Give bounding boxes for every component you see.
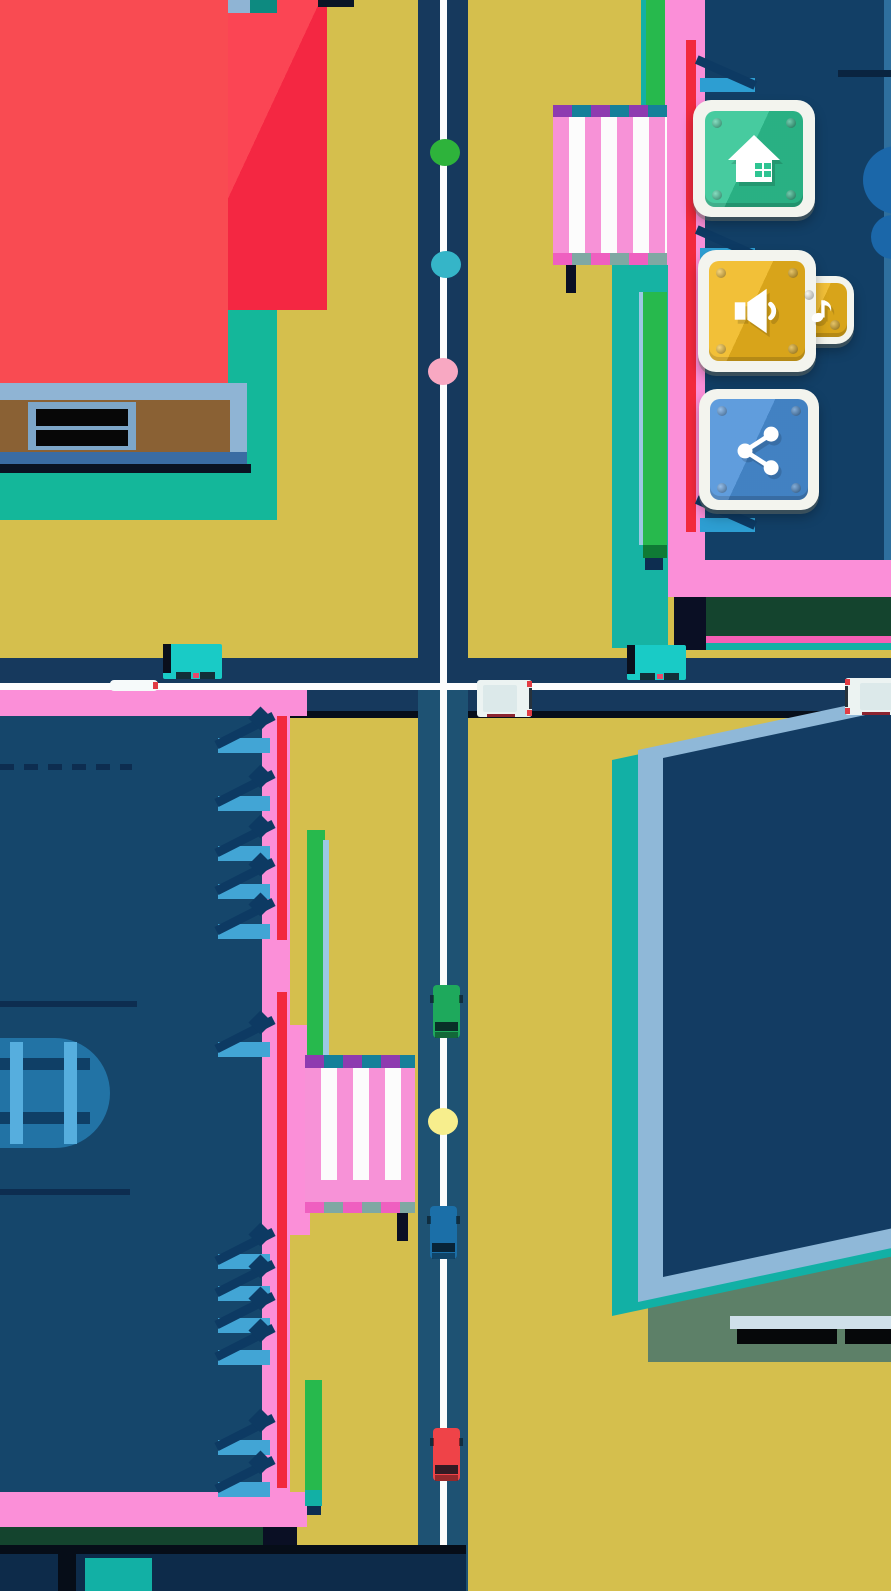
topleft-window-pane [36, 409, 128, 426]
van-corner-light [845, 679, 850, 685]
screw-icon [712, 118, 722, 128]
crosswalk-post [397, 1213, 408, 1241]
screw-icon [791, 406, 801, 416]
bottom-black-tick [58, 1554, 76, 1591]
crosswalk-top [553, 105, 667, 265]
bottomleft-red-stripe [277, 716, 287, 940]
bus-stripe [163, 644, 171, 673]
game-viewport [0, 0, 891, 1591]
crosswalk-mid [305, 1055, 415, 1213]
pedestrian-dot [430, 139, 460, 166]
bottomleft-pink-bottom-border [0, 1492, 307, 1527]
pedestrian-dot [428, 1108, 458, 1135]
bottomright-entrance-window [845, 1329, 891, 1344]
bus[interactable] [163, 644, 222, 679]
car-bumper [432, 1253, 455, 1259]
car-mirror [459, 995, 463, 1003]
bottomright-building-roof [663, 692, 891, 1277]
crosswalk-cap [553, 105, 667, 117]
car-mirror [430, 1438, 434, 1446]
crosswalk-stripes [553, 117, 667, 253]
van[interactable] [477, 680, 532, 717]
van-grill [529, 688, 532, 709]
van-corner-light [527, 710, 532, 716]
topleft-window-pane [36, 430, 128, 446]
topright-green-stripe [643, 292, 667, 545]
share-button-face[interactable] [710, 399, 808, 500]
car-windshield [435, 1022, 458, 1031]
crosswalk-solid [305, 1180, 415, 1202]
topleft-steel-band [0, 383, 247, 400]
bus-wheel [664, 673, 679, 680]
sound-button[interactable] [698, 250, 816, 372]
screw-icon [716, 268, 726, 278]
topright-roof-edge-highlight [884, 0, 891, 560]
screw-icon [717, 406, 727, 416]
topleft-blue-band [0, 452, 247, 464]
screw-icon [788, 344, 798, 354]
roof-vent-line [838, 70, 891, 77]
car-mirror [459, 1438, 463, 1446]
van-roof [860, 683, 891, 710]
topright-pink-bottom-band [660, 560, 891, 597]
bus-wheel [640, 673, 655, 680]
top-edge-black-bit [318, 0, 354, 7]
car-bumper [435, 1475, 458, 1481]
crosswalk-stripes [305, 1068, 415, 1180]
bottom-teal-block [85, 1558, 152, 1591]
home-button[interactable] [693, 100, 815, 217]
van-bumper [487, 714, 515, 717]
green-stripe-navy-tick [307, 1506, 321, 1515]
pedestrian-dot [431, 251, 461, 278]
lane-line-vertical [440, 0, 447, 683]
screw-icon [788, 268, 798, 278]
speaker-icon [728, 282, 786, 340]
car-mirror [427, 1216, 431, 1224]
share-button[interactable] [699, 389, 819, 510]
sound-button-face[interactable] [709, 261, 805, 361]
crosswalk-cap [305, 1202, 415, 1213]
car[interactable] [430, 1206, 457, 1259]
car-windshield [435, 1465, 458, 1474]
bus-wheel [176, 672, 191, 679]
topright-pink-line [706, 636, 891, 643]
home-button-face[interactable] [705, 111, 803, 207]
screw-icon [712, 190, 722, 200]
topright-forest-band [706, 597, 891, 636]
van-roof [483, 685, 517, 712]
dock-pillar [64, 1042, 77, 1144]
van-corner-light [527, 681, 532, 687]
screw-icon [716, 344, 726, 354]
green-stripe-teal-cap [305, 1490, 322, 1506]
share-icon [731, 422, 787, 478]
van-grill [845, 686, 848, 707]
bus-taillight [193, 673, 199, 678]
car-taillight [153, 682, 158, 689]
car[interactable] [433, 985, 460, 1038]
floor-marking-line [0, 1001, 137, 1007]
crosswalk-post [566, 265, 576, 293]
screw-icon [791, 483, 801, 493]
car-bumper [435, 1032, 458, 1038]
hedge-edge-highlight [323, 840, 329, 1068]
topleft-roof-cap-lightblue [228, 0, 250, 13]
topright-navy-tick [645, 558, 663, 570]
home-icon [724, 129, 784, 189]
car-windshield [432, 1243, 455, 1252]
crosswalk-cap [553, 253, 667, 265]
topleft-black-band [0, 464, 251, 473]
green-stripe-lower [305, 1380, 322, 1490]
loading-dock [0, 1038, 110, 1148]
topleft-roof-cap-teal [250, 0, 277, 13]
bottomright-entrance-window [737, 1329, 837, 1344]
crosswalk-cap [305, 1055, 415, 1068]
van-bumper [862, 712, 890, 715]
pedestrian-dot [428, 358, 458, 385]
topleft-steel-column [228, 383, 247, 455]
topright-teal-line [706, 643, 891, 650]
topright-green-stripe-cap [643, 545, 667, 558]
screw-icon [786, 118, 796, 128]
dock-pillar [10, 1042, 23, 1144]
floor-marking-dashed [0, 764, 132, 770]
screw-icon [830, 320, 840, 330]
screw-icon [786, 190, 796, 200]
car[interactable] [433, 1428, 460, 1481]
bottom-building-edge-black [0, 1545, 466, 1554]
bus-taillight [657, 674, 663, 679]
topleft-red-roof [0, 0, 228, 383]
van[interactable] [845, 678, 891, 715]
floor-marking-line [0, 1189, 130, 1195]
bottomleft-red-stripe [277, 992, 287, 1488]
bus-stripe [627, 645, 635, 674]
bus-wheel [200, 672, 215, 679]
mini-car[interactable] [110, 680, 158, 691]
topright-door [674, 597, 706, 650]
car-mirror [456, 1216, 460, 1224]
car-mirror [430, 995, 434, 1003]
screw-icon [717, 483, 727, 493]
bus[interactable] [627, 645, 686, 680]
screw-icon [804, 290, 814, 300]
van-corner-light [845, 708, 850, 714]
bottomright-entrance-strip [730, 1316, 891, 1329]
topleft-red-roof-extension [228, 0, 327, 310]
